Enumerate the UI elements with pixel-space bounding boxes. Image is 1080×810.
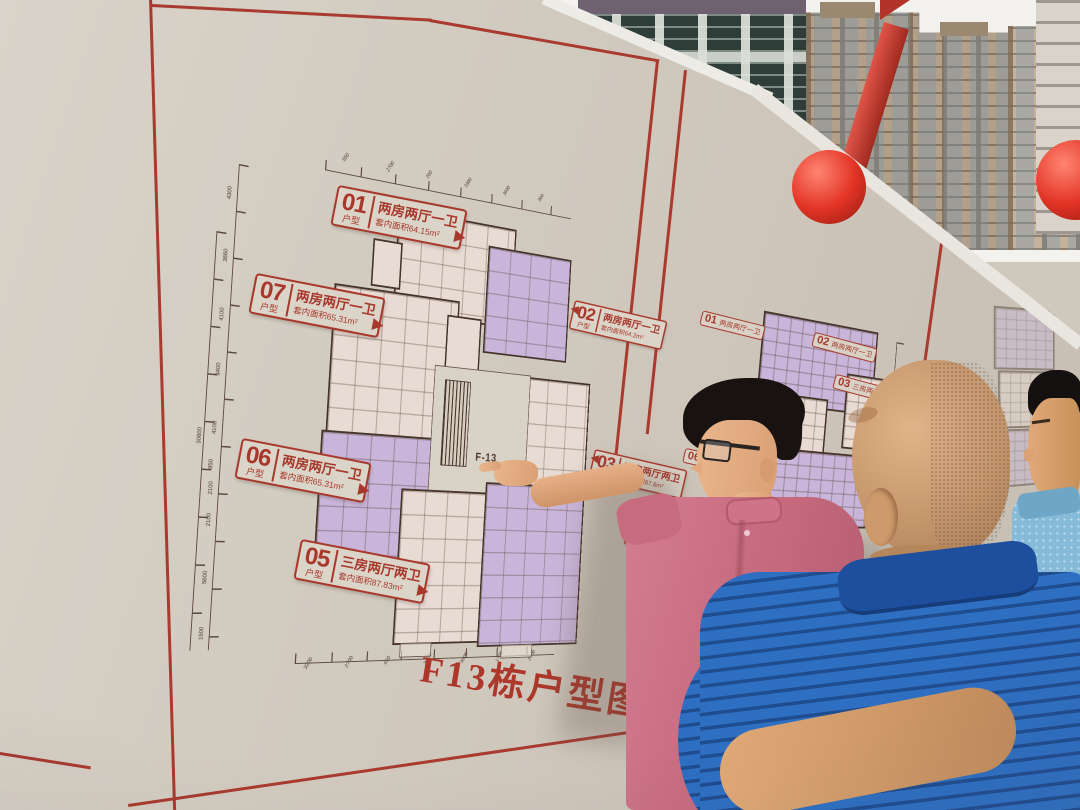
dim-label: 2700	[386, 161, 396, 174]
unit-kind: 户型	[341, 214, 360, 226]
red-border-top	[152, 4, 432, 21]
unit-number: 01	[704, 313, 719, 327]
stair-hatch	[440, 379, 471, 467]
dim-label: 900	[538, 193, 545, 203]
floorplan-block-annex	[371, 238, 403, 290]
dim-label: 5600	[203, 571, 209, 584]
dim-label: 3660	[223, 248, 229, 262]
unit-number: 03	[837, 377, 852, 391]
rooftop-structure	[820, 2, 875, 18]
unit-kind: 户型	[259, 302, 278, 314]
unit-kind: 户型	[245, 467, 264, 479]
unit-number: 02	[816, 335, 831, 349]
dim-label: 200	[426, 170, 434, 180]
dim-label: 1500	[199, 627, 205, 640]
red-border-corner	[0, 752, 91, 769]
dim-label: 4300	[227, 186, 233, 200]
dim-label: 4100	[212, 421, 218, 435]
bald-man-stubble	[930, 362, 1010, 558]
shirt-button	[744, 530, 750, 536]
dim-label: 3300	[464, 177, 473, 189]
red-border-poster2-left	[646, 70, 687, 434]
dim-label-total: 30600	[197, 427, 204, 444]
dim-label: 2100	[208, 481, 214, 495]
glasses-lens	[702, 438, 732, 462]
unit-kind: 户型	[576, 321, 590, 330]
dim-label: 850	[342, 152, 351, 163]
floorplan-block-unit04	[477, 482, 585, 647]
red-balloon-left	[792, 150, 866, 224]
dim-label: 850	[209, 459, 215, 469]
red-pennant	[880, 0, 910, 20]
building-roof-band	[578, 0, 806, 14]
dim-label: 4100	[220, 307, 226, 321]
photo-scene: 4300 3660 4100 3400 4100 850 2100 2100 5…	[0, 0, 1080, 810]
lightblue-man-face	[1028, 398, 1080, 498]
rooftop-structure	[940, 22, 988, 36]
lightblue-man-nose	[1024, 448, 1034, 462]
dim-label: 3400	[216, 362, 222, 376]
pink-man-nose	[690, 462, 702, 474]
floorplan-block-unit02	[483, 246, 572, 363]
unit-kind: 户型	[304, 568, 323, 580]
dim-label: 3600	[503, 185, 512, 197]
dim-label: 2100	[206, 513, 212, 526]
pink-shirt-collar	[725, 496, 783, 526]
pink-man-ear	[760, 458, 775, 482]
red-border-left	[149, 0, 176, 810]
bald-man-ear	[864, 488, 898, 546]
